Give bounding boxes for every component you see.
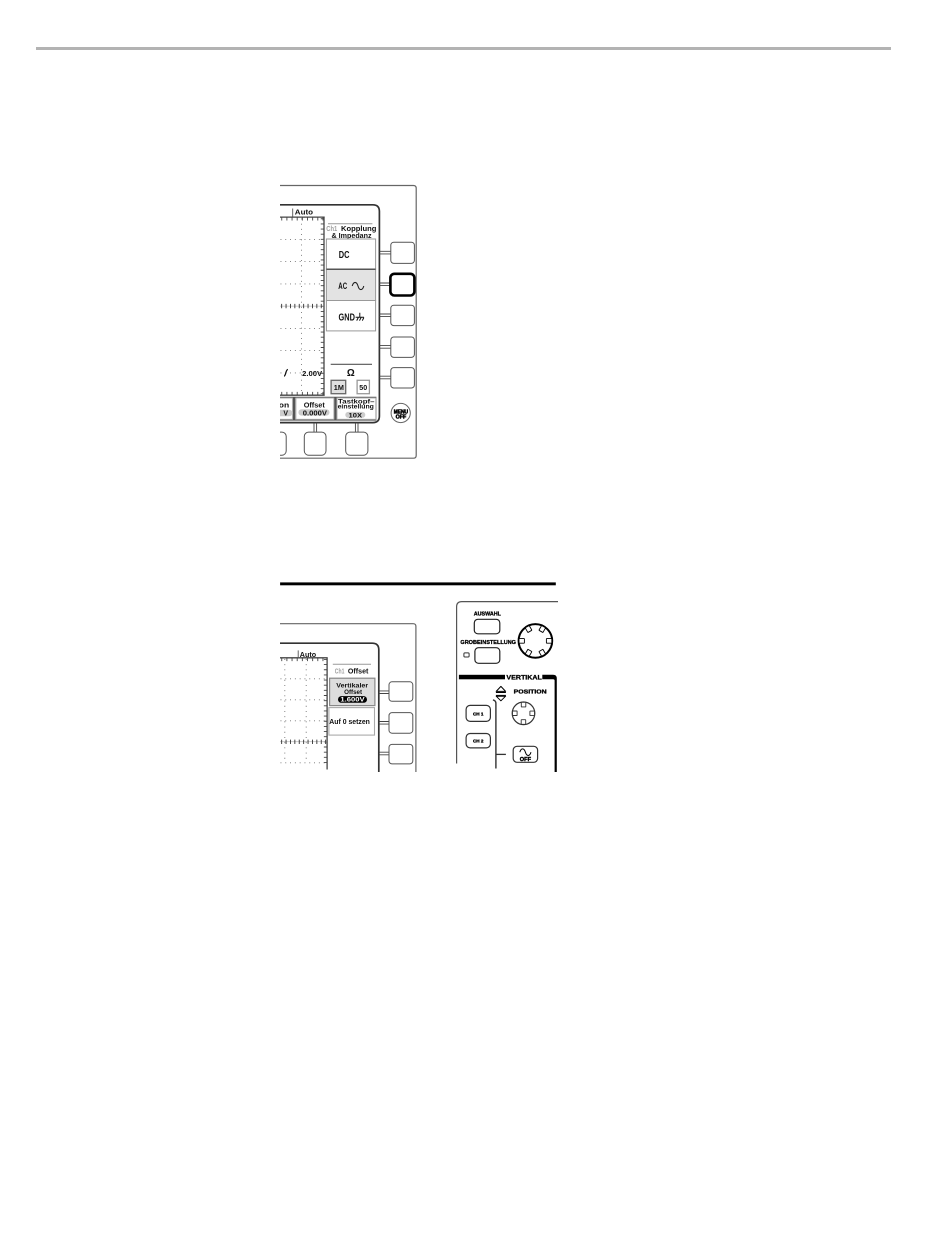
svg-text:Auto: Auto	[300, 650, 317, 659]
svg-text:einstellung: einstellung	[338, 403, 374, 410]
svg-text:OFF: OFF	[396, 415, 407, 421]
svg-text:0.000V: 0.000V	[303, 410, 328, 417]
svg-text:Offset: Offset	[344, 689, 363, 696]
svg-text:AC: AC	[338, 281, 347, 292]
svg-text:GROBEINSTELLUNG: GROBEINSTELLUNG	[460, 640, 516, 646]
svg-text:CH 1: CH 1	[473, 711, 484, 717]
svg-text:Offset: Offset	[348, 666, 369, 675]
svg-text:Auf 0 setzen: Auf 0 setzen	[329, 717, 370, 726]
svg-text:VERTIKAL: VERTIKAL	[506, 674, 541, 681]
svg-text:2.00V: 2.00V	[302, 369, 322, 378]
svg-text:Ω: Ω	[347, 368, 355, 379]
svg-text:10X: 10X	[349, 412, 363, 419]
svg-text:GND: GND	[339, 311, 356, 323]
svg-text:1M: 1M	[334, 383, 344, 392]
svg-text:on: on	[280, 401, 290, 410]
svg-text:Ch1: Ch1	[335, 666, 345, 675]
svg-text:DC: DC	[339, 249, 350, 261]
svg-text:AUSWAHL: AUSWAHL	[474, 611, 502, 617]
svg-text:CH 2: CH 2	[473, 739, 484, 745]
svg-text:Offset: Offset	[304, 401, 326, 410]
svg-text:1.600V: 1.600V	[340, 698, 364, 704]
svg-text:50: 50	[359, 383, 367, 392]
svg-text:Auto: Auto	[295, 208, 314, 217]
svg-text:V: V	[283, 411, 288, 418]
svg-text:OFF: OFF	[520, 757, 531, 763]
svg-text:POSITION: POSITION	[514, 690, 547, 696]
